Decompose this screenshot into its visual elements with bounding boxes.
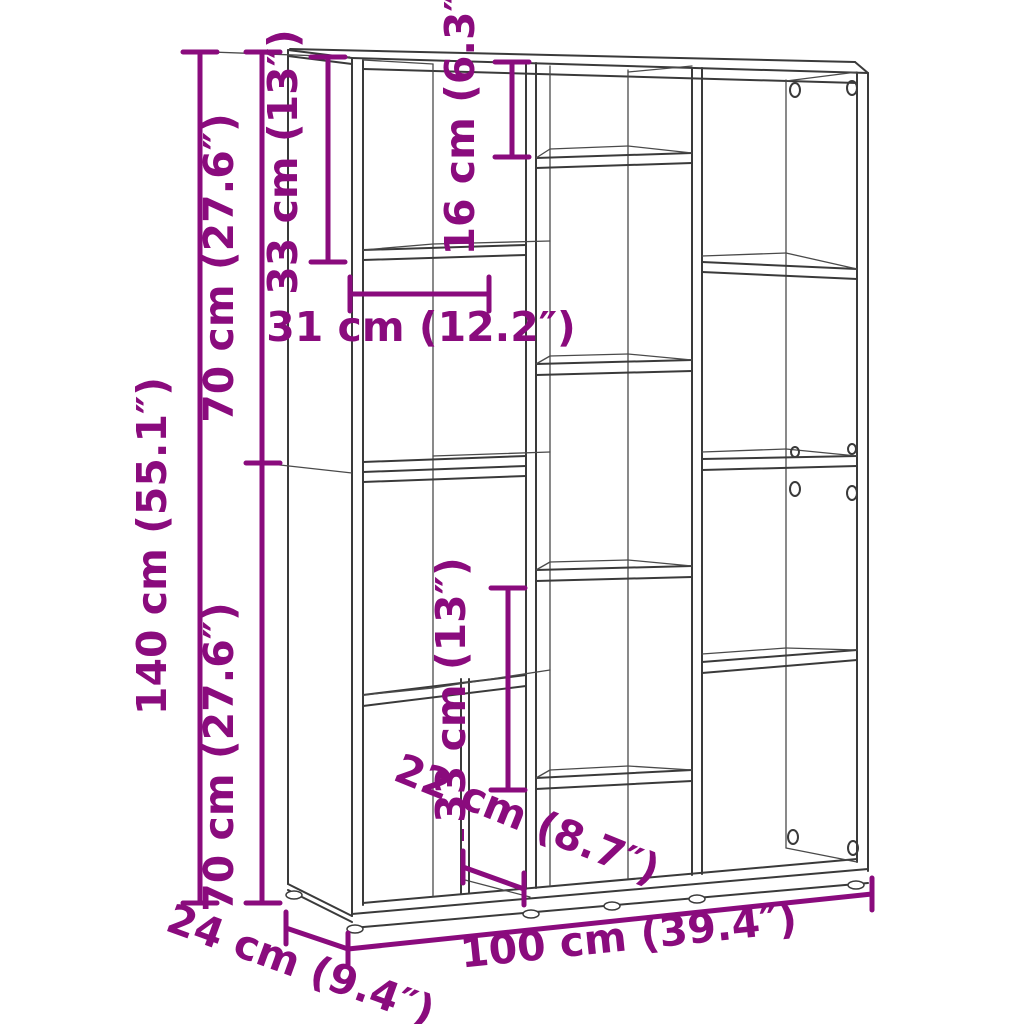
dim-small-compartment: 16 cm (6.3″) (436, 0, 529, 256)
carcass-outline (288, 49, 868, 928)
bookcase-drawing (286, 49, 868, 933)
dim-label-lower-section: 70 cm (27.6″) (195, 602, 243, 912)
dim-label-upper-section: 70 cm (27.6″) (195, 113, 243, 423)
dim-label-total-height: 140 cm (55.1″) (128, 377, 176, 715)
dim-label-compartment-width: 31 cm (12.2″) (266, 303, 576, 351)
dim-bottom-compartment: 22 cm (8.7″) (388, 744, 667, 905)
dim-depth: 24 cm (9.4″) (161, 894, 442, 1024)
dim-top-compartment: 33 cm (13″) (259, 29, 345, 294)
dim-compartment-width: 31 cm (12.2″) (266, 277, 576, 351)
dim-label-top-compartment: 33 cm (13″) (259, 29, 307, 294)
bookcase-diagram-svg: 140 cm (55.1″) 70 cm (27.6″) 70 cm (27.6… (0, 0, 1024, 1024)
dimension-diagram: 140 cm (55.1″) 70 cm (27.6″) 70 cm (27.6… (0, 0, 1024, 1024)
middle-column-shelves (536, 146, 692, 789)
dim-label-total-width: 100 cm (39.4″) (458, 895, 799, 978)
dim-label-depth: 24 cm (9.4″) (161, 894, 442, 1024)
dimension-annotations: 140 cm (55.1″) 70 cm (27.6″) 70 cm (27.6… (128, 0, 872, 1024)
vertical-dividers (461, 63, 702, 894)
dim-label-small-compartment: 16 cm (6.3″) (436, 0, 484, 256)
dim-total-width: 100 cm (39.4″) (348, 878, 872, 978)
right-column-shelves (702, 253, 857, 673)
